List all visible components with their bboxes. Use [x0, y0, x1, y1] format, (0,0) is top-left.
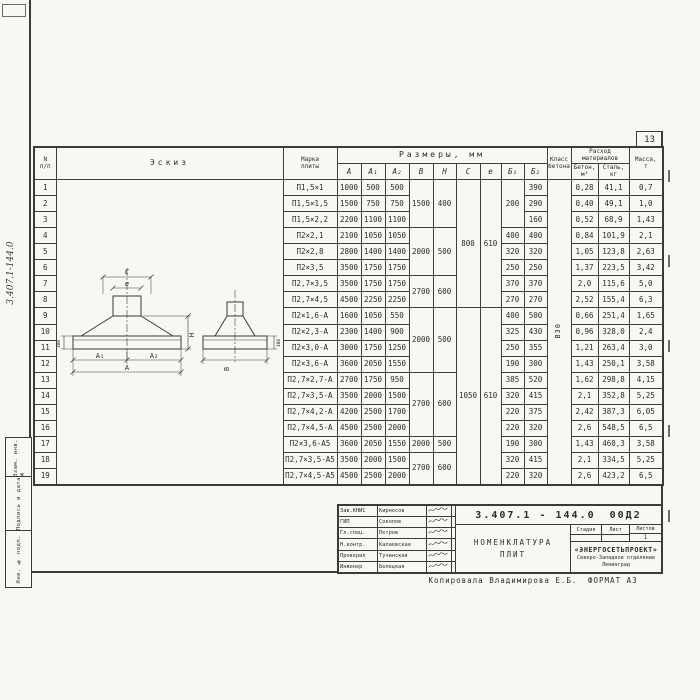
cell-mark: П2,7×2,7-А — [283, 372, 337, 388]
cell-a1: 2500 — [361, 404, 385, 420]
margin-stamp-label: Инв. № подл. — [16, 535, 22, 583]
cell-steel: 352,8 — [598, 388, 629, 404]
cell-b1: 220 — [501, 404, 524, 420]
cell-h: 500 — [433, 228, 456, 276]
signature-row: Гл.спец.Петров — [339, 528, 456, 539]
signatory-role: Проверил — [339, 550, 378, 561]
cell-mass: 0,7 — [629, 180, 663, 196]
cell-b2: 270 — [524, 292, 547, 308]
cell-a2: 2000 — [385, 420, 409, 436]
cell-a2: 1100 — [385, 212, 409, 228]
num-header-bottom: п/п — [35, 164, 56, 170]
margin-stamp-label: Подпись и дата — [16, 477, 22, 530]
edge-mark — [668, 170, 670, 182]
col-header-class: Класс бетона — [547, 147, 571, 180]
sketch-side-view — [200, 290, 277, 364]
cell-concrete: 0,96 — [571, 324, 598, 340]
cell-concrete: 2,1 — [571, 452, 598, 468]
cell-concrete: 2,1 — [571, 388, 598, 404]
cell-mass: 3,58 — [629, 356, 663, 372]
cell-concrete: 1,43 — [571, 436, 598, 452]
stage-col: Стадия — [571, 525, 602, 541]
document-title-cell: НОМЕНКЛАТУРА ПЛИТ — [455, 524, 571, 573]
cell-b1: 385 — [501, 372, 524, 388]
cell-steel: 251,4 — [598, 308, 629, 324]
concrete-header-2: м³ — [572, 172, 598, 178]
cell-b2: 320 — [524, 420, 547, 436]
signatory-name: Тучинская — [378, 550, 427, 561]
cell-steel: 263,4 — [598, 340, 629, 356]
cell-a: 2300 — [337, 324, 361, 340]
cell-concrete: 1,05 — [571, 244, 598, 260]
dim-label-c: C — [124, 268, 129, 276]
cell-a: 3500 — [337, 276, 361, 292]
cell-mass: 6,5 — [629, 468, 663, 485]
signatory-name: Петров — [378, 528, 427, 539]
cell-mass: 3,42 — [629, 260, 663, 276]
organization-name: «ЭНЕРГОСЕТЬПРОЕКТ» — [575, 546, 658, 554]
cell-mass: 5,0 — [629, 276, 663, 292]
cell-b2: 160 — [524, 212, 547, 228]
table-row: 1 — [34, 180, 663, 196]
sketch-cell: C e A₁ A₂ A H 100 B 100 — [56, 180, 283, 485]
cell-a2: 550 — [385, 308, 409, 324]
col-header-e: e — [480, 164, 501, 180]
cell-concrete: 2,6 — [571, 420, 598, 436]
stage-label: Стадия — [571, 525, 601, 535]
cell-a1: 750 — [361, 196, 385, 212]
col-header-A: A — [337, 164, 361, 180]
cell-mass: 5,25 — [629, 388, 663, 404]
cell-a1: 2500 — [361, 468, 385, 485]
col-header-steel: Сталь, кг — [598, 164, 629, 180]
cell-a2: 1550 — [385, 356, 409, 372]
document-number: 3.407.1 - 144.0 — [475, 510, 595, 521]
cell-steel: 49,1 — [598, 196, 629, 212]
cell-b1: 400 — [501, 228, 524, 244]
cell-b1: 250 — [501, 340, 524, 356]
cell-mark: П2×3,0-А — [283, 340, 337, 356]
cell-a: 4200 — [337, 404, 361, 420]
cell-a2: 1750 — [385, 260, 409, 276]
cell-steel: 548,5 — [598, 420, 629, 436]
cell-b2: 320 — [524, 244, 547, 260]
cell-a: 1600 — [337, 308, 361, 324]
cell-a: 1500 — [337, 196, 361, 212]
cell-a: 2700 — [337, 372, 361, 388]
cell-a1: 1750 — [361, 340, 385, 356]
margin-stamp-podpis: Подпись и дата — [5, 476, 32, 532]
cell-b1: 370 — [501, 276, 524, 292]
cell-a: 3000 — [337, 340, 361, 356]
cell-steel: 223,5 — [598, 260, 629, 276]
cell-mark: П2×3,6-А — [283, 356, 337, 372]
cell-steel: 298,8 — [598, 372, 629, 388]
copied-by-note: Копировала Владимирова Е.Б. — [408, 576, 598, 585]
signature-scribble-icon — [427, 528, 452, 539]
signatory-role: Гл.спец. — [339, 528, 378, 539]
cell-a: 2100 — [337, 228, 361, 244]
cell-num: 3 — [34, 212, 56, 228]
dim-label-a1: A₁ — [95, 352, 103, 360]
cell-concrete: 1,21 — [571, 340, 598, 356]
cell-a2: 1750 — [385, 276, 409, 292]
cell-a: 3500 — [337, 260, 361, 276]
signatory-name: Калаевская — [378, 539, 427, 550]
cell-a2: 2000 — [385, 468, 409, 485]
cell-mark: П2×2,1 — [283, 228, 337, 244]
col-header-consumption: Расход материалов — [571, 147, 629, 164]
cell-b: 2000 — [409, 436, 433, 452]
col-header-dims-group: Размеры, мм — [337, 147, 547, 164]
cell-b: 2000 — [409, 228, 433, 276]
document-title-line2: ПЛИТ — [500, 549, 526, 561]
cell-b1: 200 — [501, 180, 524, 228]
cell-mark: П2×3,5 — [283, 260, 337, 276]
cell-b2: 300 — [524, 436, 547, 452]
col-header-C: C — [456, 164, 480, 180]
cell-a: 4500 — [337, 468, 361, 485]
cell-num: 19 — [34, 468, 56, 485]
cell-b2: 415 — [524, 452, 547, 468]
cell-mark: П2,7×4,5 — [283, 292, 337, 308]
cell-num: 5 — [34, 244, 56, 260]
edge-mark — [668, 340, 670, 352]
cell-a2: 2250 — [385, 292, 409, 308]
cell-b: 2700 — [409, 276, 433, 308]
cell-b: 2700 — [409, 452, 433, 485]
cell-steel: 101,9 — [598, 228, 629, 244]
cell-num: 15 — [34, 404, 56, 420]
signatory-role: ГИП — [339, 517, 378, 528]
signature-row: ПроверилТучинская — [339, 550, 456, 561]
sheet-label: Лист — [602, 525, 629, 535]
cell-steel: 115,6 — [598, 276, 629, 292]
edge-mark — [668, 510, 670, 522]
signature-row: ГИПСоколов — [339, 517, 456, 528]
cell-a: 2800 — [337, 244, 361, 260]
signature-scribble-icon — [427, 506, 452, 517]
cell-mark: П2,7×4,5-А — [283, 420, 337, 436]
cell-b: 2700 — [409, 372, 433, 436]
cell-steel: 328,0 — [598, 324, 629, 340]
title-block: Зав.КНИСКирносовГИПСоколовГл.спец.Петров… — [337, 504, 663, 574]
signature-table: Зав.КНИСКирносовГИПСоколовГл.спец.Петров… — [338, 505, 456, 573]
cell-mark: П2,7×4,5-А5 — [283, 468, 337, 485]
cell-num: 12 — [34, 356, 56, 372]
dim-label-100-right: 100 — [276, 339, 282, 347]
cell-concrete: 2,42 — [571, 404, 598, 420]
signature-row: Зав.КНИСКирносов — [339, 506, 456, 517]
cell-num: 8 — [34, 292, 56, 308]
sheet-number: 13 — [644, 135, 655, 145]
cell-steel: 423,2 — [598, 468, 629, 485]
dim-label-e: e — [124, 280, 128, 288]
cell-num: 4 — [34, 228, 56, 244]
col-header-H: H — [433, 164, 456, 180]
cell-a2: 500 — [385, 180, 409, 196]
cell-concrete: 0,66 — [571, 308, 598, 324]
format-note: ФОРМАТ А3 — [588, 576, 638, 585]
cell-b2: 370 — [524, 276, 547, 292]
cell-b1: 325 — [501, 324, 524, 340]
cell-concrete: 2,6 — [571, 468, 598, 485]
plate-sketch: C e A₁ A₂ A H 100 B 100 — [57, 180, 283, 482]
margin-stamp-vzam: Взам. инв. № — [5, 437, 32, 478]
cell-a1: 2500 — [361, 420, 385, 436]
signatory-role: Инженер — [339, 561, 378, 572]
signatory-name: Белецкая — [378, 561, 427, 572]
cell-mass: 6,5 — [629, 420, 663, 436]
cell-a2: 1550 — [385, 436, 409, 452]
cell-mass: 1,65 — [629, 308, 663, 324]
cell-mark: П1,5×1 — [283, 180, 337, 196]
cell-a2: 1050 — [385, 228, 409, 244]
cell-b1: 250 — [501, 260, 524, 276]
cell-mass: 2,4 — [629, 324, 663, 340]
cell-a1: 1050 — [361, 308, 385, 324]
dim-label-b: B — [223, 367, 231, 371]
cell-a1: 1400 — [361, 324, 385, 340]
cell-steel: 250,1 — [598, 356, 629, 372]
cell-b2: 320 — [524, 468, 547, 485]
cell-b1: 400 — [501, 308, 524, 324]
cell-a: 4500 — [337, 420, 361, 436]
cell-a1: 1750 — [361, 276, 385, 292]
cell-num: 13 — [34, 372, 56, 388]
cell-c: 1050 — [456, 308, 480, 485]
cell-concrete: 2,0 — [571, 276, 598, 292]
signature-scribble-icon — [427, 517, 452, 528]
cell-steel: 41,1 — [598, 180, 629, 196]
cell-concrete: 1,43 — [571, 356, 598, 372]
cell-b2: 430 — [524, 324, 547, 340]
class-header-2: бетона — [548, 164, 571, 170]
cell-a1: 2050 — [361, 356, 385, 372]
cell-num: 1 — [34, 180, 56, 196]
signatory-name: Соколов — [378, 517, 427, 528]
cell-mass: 1,0 — [629, 196, 663, 212]
cell-a: 3500 — [337, 388, 361, 404]
sheets-col: Листов 1 — [630, 525, 661, 541]
cell-mark: П1,5×2,2 — [283, 212, 337, 228]
cell-a1: 1100 — [361, 212, 385, 228]
cons-header-2: материалов — [572, 156, 629, 162]
cell-b2: 390 — [524, 180, 547, 196]
cell-concrete: 1,37 — [571, 260, 598, 276]
dim-label-a: A — [124, 364, 129, 372]
cell-mass: 6,3 — [629, 292, 663, 308]
steel-header-2: кг — [599, 172, 629, 178]
cell-mark: П2×1,6-А — [283, 308, 337, 324]
cell-b1: 190 — [501, 436, 524, 452]
organization-branch: Северо-Западное отделение — [577, 555, 655, 561]
nomenclature-table: N п/п Эскиз Марка плиты Размеры, мм Клас… — [33, 146, 664, 486]
cell-a2: 900 — [385, 324, 409, 340]
col-header-sketch: Эскиз — [56, 147, 283, 180]
cell-b2: 355 — [524, 340, 547, 356]
cell-concrete: 0,52 — [571, 212, 598, 228]
cell-num: 6 — [34, 260, 56, 276]
cell-mark: П1,5×1,5 — [283, 196, 337, 212]
cell-mass: 6,05 — [629, 404, 663, 420]
cell-b2: 290 — [524, 196, 547, 212]
col-header-mass: Масса, т — [629, 147, 663, 180]
cell-e: 610 — [480, 308, 501, 485]
cell-concrete: 2,52 — [571, 292, 598, 308]
col-header-B1: Б₁ — [501, 164, 524, 180]
cell-a2: 1500 — [385, 388, 409, 404]
cell-b2: 500 — [524, 308, 547, 324]
signatory-role: Н.контр. — [339, 539, 378, 550]
cell-steel: 68,9 — [598, 212, 629, 228]
mass-header-2: т — [630, 164, 663, 170]
cell-mark: П2,7×3,5 — [283, 276, 337, 292]
cell-b1: 220 — [501, 468, 524, 485]
cell-mark: П2×2,8 — [283, 244, 337, 260]
edge-mark — [668, 255, 670, 267]
margin-stamp-label: Взам. инв. № — [13, 438, 25, 477]
cell-mass: 2,63 — [629, 244, 663, 260]
sketch-labels: C e A₁ A₂ A H 100 B 100 — [57, 268, 282, 372]
cell-b2: 375 — [524, 404, 547, 420]
cell-a: 1000 — [337, 180, 361, 196]
cell-mass: 1,43 — [629, 212, 663, 228]
cell-concrete: 0,28 — [571, 180, 598, 196]
dim-label-100-left: 100 — [57, 340, 62, 348]
cell-b2: 300 — [524, 356, 547, 372]
cell-h: 600 — [433, 276, 456, 308]
cell-num: 10 — [34, 324, 56, 340]
cell-a1: 500 — [361, 180, 385, 196]
cell-a2: 750 — [385, 196, 409, 212]
cell-h: 600 — [433, 452, 456, 485]
cell-a1: 1400 — [361, 244, 385, 260]
cell-b1: 320 — [501, 244, 524, 260]
cell-a1: 1750 — [361, 372, 385, 388]
cell-c: 800 — [456, 180, 480, 308]
cell-a2: 1500 — [385, 452, 409, 468]
col-header-B: B — [409, 164, 433, 180]
cell-steel: 460,3 — [598, 436, 629, 452]
cell-a1: 2000 — [361, 388, 385, 404]
cell-a1: 1750 — [361, 260, 385, 276]
cell-h: 600 — [433, 372, 456, 436]
signature-row: Н.контр.Калаевская — [339, 539, 456, 550]
concrete-class-value: В30 — [555, 323, 562, 339]
sheets-value: 1 — [630, 534, 661, 541]
cell-mark: П2,7×3,5-А5 — [283, 452, 337, 468]
col-header-mark: Марка плиты — [283, 147, 337, 180]
signature-scribble-icon — [427, 550, 452, 561]
cell-b1: 220 — [501, 420, 524, 436]
cell-num: 17 — [34, 436, 56, 452]
cell-a1: 2050 — [361, 436, 385, 452]
cell-b2: 400 — [524, 228, 547, 244]
cell-mark: П2,7×4,2-А — [283, 404, 337, 420]
cell-b: 1500 — [409, 180, 433, 228]
col-header-A2: A₂ — [385, 164, 409, 180]
cell-b: 2000 — [409, 308, 433, 372]
cell-a2: 950 — [385, 372, 409, 388]
signature-row: ИнженерБелецкая — [339, 561, 456, 572]
cell-class: В30 — [547, 180, 571, 485]
cell-a: 3600 — [337, 436, 361, 452]
cell-a2: 1250 — [385, 340, 409, 356]
cell-e: 610 — [480, 180, 501, 308]
cell-num: 14 — [34, 388, 56, 404]
drawing-sheet: 13 3.407.1-144.0 Взам. инв. № Подпись и … — [0, 0, 700, 700]
col-header-num: N п/п — [34, 147, 56, 180]
organization-city: Ленинград — [602, 562, 630, 568]
stage-sheet-cell: Стадия Лист Листов 1 — [570, 524, 662, 542]
document-number-cell: 3.407.1 - 144.0 00Д2 — [455, 505, 662, 525]
signatory-name: Кирносов — [378, 506, 427, 517]
cell-h: 400 — [433, 180, 456, 228]
document-title-line1: НОМЕНКЛАТУРА — [474, 537, 552, 549]
cell-mass: 2,1 — [629, 228, 663, 244]
sheet-col: Лист — [602, 525, 630, 541]
cell-b1: 320 — [501, 452, 524, 468]
dim-label-h: H — [188, 333, 196, 337]
edge-mark — [668, 425, 670, 437]
organization-cell: «ЭНЕРГОСЕТЬПРОЕКТ» Северо-Западное отдел… — [570, 541, 662, 573]
cell-mark: П2,7×3,5-А — [283, 388, 337, 404]
cell-mark: П2×3,6-А5 — [283, 436, 337, 452]
cell-num: 9 — [34, 308, 56, 324]
cell-b2: 250 — [524, 260, 547, 276]
cell-num: 18 — [34, 452, 56, 468]
cell-concrete: 1,62 — [571, 372, 598, 388]
col-header-A1: A₁ — [361, 164, 385, 180]
cell-num: 16 — [34, 420, 56, 436]
side-code: 3.407.1-144.0 — [6, 226, 16, 320]
cell-concrete: 0,40 — [571, 196, 598, 212]
cell-concrete: 0,84 — [571, 228, 598, 244]
corner-box — [2, 4, 26, 17]
cell-mass: 3,58 — [629, 436, 663, 452]
cell-steel: 334,5 — [598, 452, 629, 468]
cell-mass: 5,25 — [629, 452, 663, 468]
cell-num: 11 — [34, 340, 56, 356]
col-header-B2: Б₂ — [524, 164, 547, 180]
cell-a1: 1050 — [361, 228, 385, 244]
cell-a2: 1400 — [385, 244, 409, 260]
sheets-label: Листов — [630, 525, 661, 534]
cell-a: 2200 — [337, 212, 361, 228]
cell-mass: 3,0 — [629, 340, 663, 356]
signatory-role: Зав.КНИС — [339, 506, 378, 517]
cell-b2: 520 — [524, 372, 547, 388]
table-header-row: N п/п Эскиз Марка плиты Размеры, мм Клас… — [34, 147, 663, 164]
cell-num: 2 — [34, 196, 56, 212]
cell-steel: 123,8 — [598, 244, 629, 260]
cell-mark: П2×2,3-А — [283, 324, 337, 340]
cell-b1: 190 — [501, 356, 524, 372]
cell-mass: 4,15 — [629, 372, 663, 388]
col-header-concrete: Бетон, м³ — [571, 164, 598, 180]
signature-scribble-icon — [427, 561, 452, 572]
cell-b2: 415 — [524, 388, 547, 404]
cell-b1: 270 — [501, 292, 524, 308]
cell-a: 3500 — [337, 452, 361, 468]
cell-a1: 2000 — [361, 452, 385, 468]
cell-a: 3600 — [337, 356, 361, 372]
cell-steel: 387,3 — [598, 404, 629, 420]
cell-h: 500 — [433, 436, 456, 452]
cell-steel: 155,4 — [598, 292, 629, 308]
cell-b1: 320 — [501, 388, 524, 404]
